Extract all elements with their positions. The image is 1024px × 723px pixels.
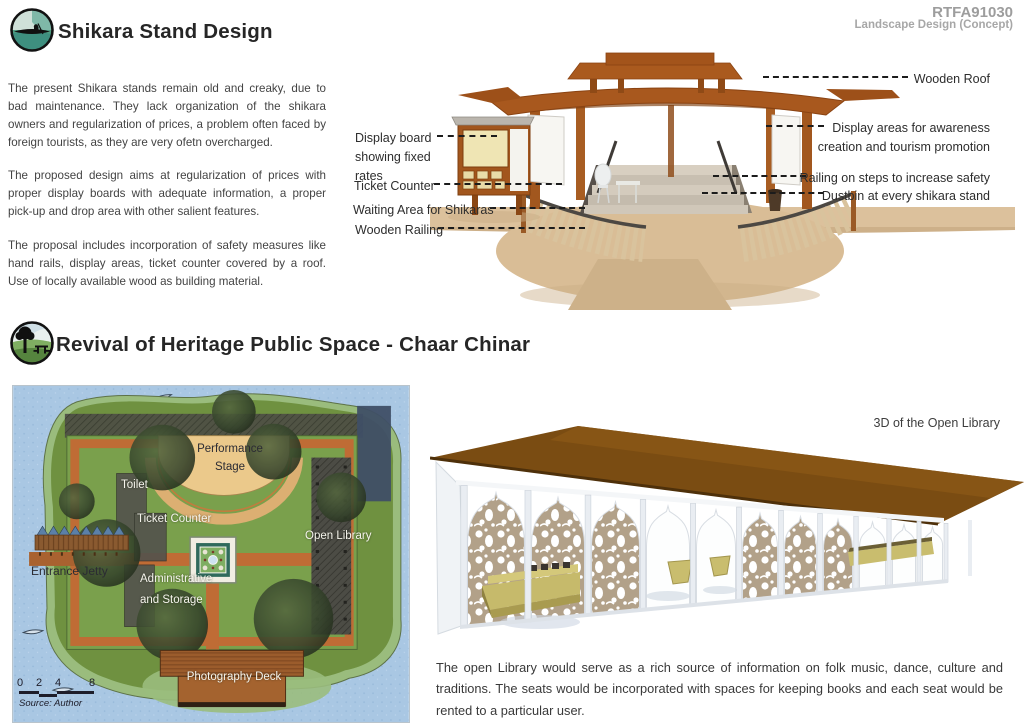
end-wall (436, 462, 464, 634)
callout-ticket-counter: Ticket Counter (354, 177, 435, 196)
paragraph-1: The present Shikara stands remain old an… (8, 80, 326, 152)
scale-tick-8: 8 (89, 677, 95, 689)
callout-waiting-area: Waiting Area for Shikaras (353, 201, 494, 220)
project-type: Landscape Design (Concept) (793, 19, 1013, 31)
plan-label-entrance-jetty: Entrance Jetty (31, 562, 108, 581)
scale-bar-segment (39, 694, 57, 697)
leader-line (438, 227, 585, 229)
open-library-description: The open Library would serve as a rich s… (436, 657, 1003, 721)
leader-line (713, 175, 806, 177)
callout-railing-steps: Railing on steps to increase safety (800, 169, 990, 188)
callout-dustbin: Dustbin at every shikara stand (822, 187, 990, 206)
callout-wooden-railing: Wooden Railing (355, 221, 443, 240)
open-library-render (430, 424, 1024, 654)
shikara-description: The present Shikara stands remain old an… (8, 80, 326, 306)
callout-wooden-roof: Wooden Roof (914, 70, 990, 89)
park-logo-icon (10, 321, 54, 365)
scale-bar-segment (19, 691, 39, 694)
presentation-board: Shikara Stand Design RTFA91030 Landscape… (0, 0, 1024, 723)
plan-label-admin-storage: Administrative and Storage (140, 569, 232, 612)
left-display-panel (528, 115, 564, 185)
plan-label-toilet: Toilet (121, 477, 148, 495)
leader-line (490, 207, 585, 209)
plan-label-ticket-counter: Ticket Counter (137, 511, 211, 529)
callout-display-areas: Display areas for awareness creation and… (812, 119, 990, 157)
paragraph-3: The proposal includes incorporation of s… (8, 237, 326, 291)
scale-tick-0: 0 (17, 677, 23, 689)
plan-label-open-library: Open Library (305, 528, 371, 546)
scale-tick-2: 2 (36, 677, 42, 689)
plan-label-performance-stage: Performance Stage (184, 441, 276, 477)
leader-line (702, 192, 824, 194)
end-post (968, 520, 972, 576)
section-title-shikara: Shikara Stand Design (58, 20, 273, 44)
shikara-logo-icon (10, 8, 54, 52)
library-roof (430, 426, 1024, 524)
scale-tick-4: 4 (55, 677, 61, 689)
paragraph-2: The proposed design aims at regularizati… (8, 167, 326, 221)
plan-source-credit: Source: Author (19, 698, 82, 709)
wooden-roof (458, 53, 900, 115)
leader-line (763, 76, 908, 78)
plan-label-photography-deck: Photography Deck (176, 669, 292, 687)
scale-bar-segment (57, 691, 94, 694)
section-title-chaar-chinar: Revival of Heritage Public Space - Chaar… (56, 333, 530, 357)
